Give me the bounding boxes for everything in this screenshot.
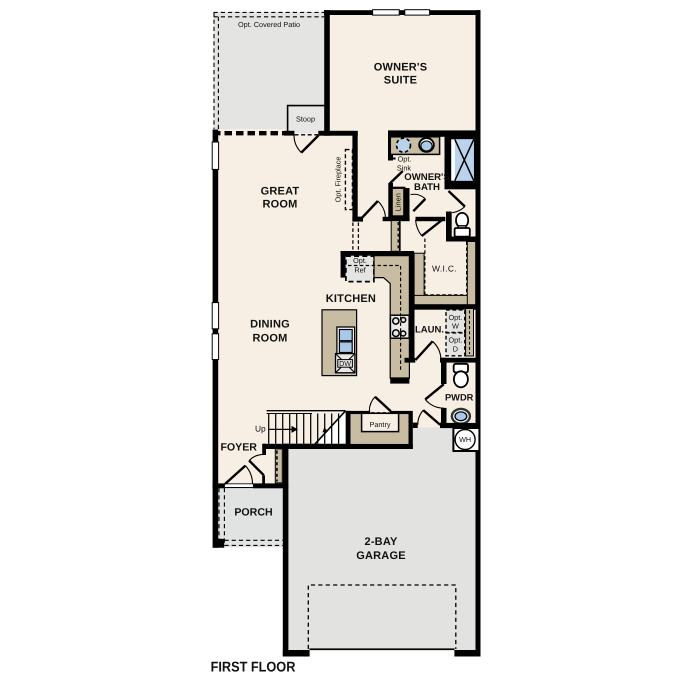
svg-text:Sink: Sink xyxy=(397,163,412,172)
svg-text:Stoop: Stoop xyxy=(296,115,315,124)
svg-text:DW: DW xyxy=(339,359,351,368)
svg-text:Linen: Linen xyxy=(394,193,403,211)
svg-text:D: D xyxy=(453,344,458,353)
svg-text:WH: WH xyxy=(459,435,471,444)
svg-text:Opt.: Opt. xyxy=(353,256,367,265)
svg-text:W.I.C.: W.I.C. xyxy=(432,264,457,274)
svg-text:Opt.: Opt. xyxy=(398,155,412,164)
svg-text:ROOM: ROOM xyxy=(262,199,297,211)
svg-text:Ref: Ref xyxy=(354,266,366,275)
svg-text:SUITE: SUITE xyxy=(384,75,417,87)
svg-text:2-BAY: 2-BAY xyxy=(365,536,398,548)
svg-text:W: W xyxy=(452,322,459,331)
svg-text:Up: Up xyxy=(255,423,266,433)
svg-text:Opt. Covered Patio: Opt. Covered Patio xyxy=(238,20,300,29)
svg-text:BATH: BATH xyxy=(414,182,440,193)
svg-text:FIRST FLOOR: FIRST FLOOR xyxy=(211,659,296,675)
svg-text:GARAGE: GARAGE xyxy=(356,550,405,562)
svg-text:PORCH: PORCH xyxy=(234,506,272,518)
svg-text:OWNER'S: OWNER'S xyxy=(374,62,428,74)
svg-text:DINING: DINING xyxy=(250,318,290,330)
svg-text:Opt.: Opt. xyxy=(449,336,463,345)
svg-text:Opt. Fireplace: Opt. Fireplace xyxy=(333,157,342,203)
svg-text:Pantry: Pantry xyxy=(369,420,390,429)
svg-text:ROOM: ROOM xyxy=(252,332,287,344)
svg-text:LAUN.: LAUN. xyxy=(415,324,444,335)
svg-text:KITCHEN: KITCHEN xyxy=(326,293,376,305)
svg-text:GREAT: GREAT xyxy=(261,185,300,197)
svg-text:Opt.: Opt. xyxy=(449,313,463,322)
svg-text:FOYER: FOYER xyxy=(220,442,257,454)
svg-text:PWDR: PWDR xyxy=(445,392,474,402)
